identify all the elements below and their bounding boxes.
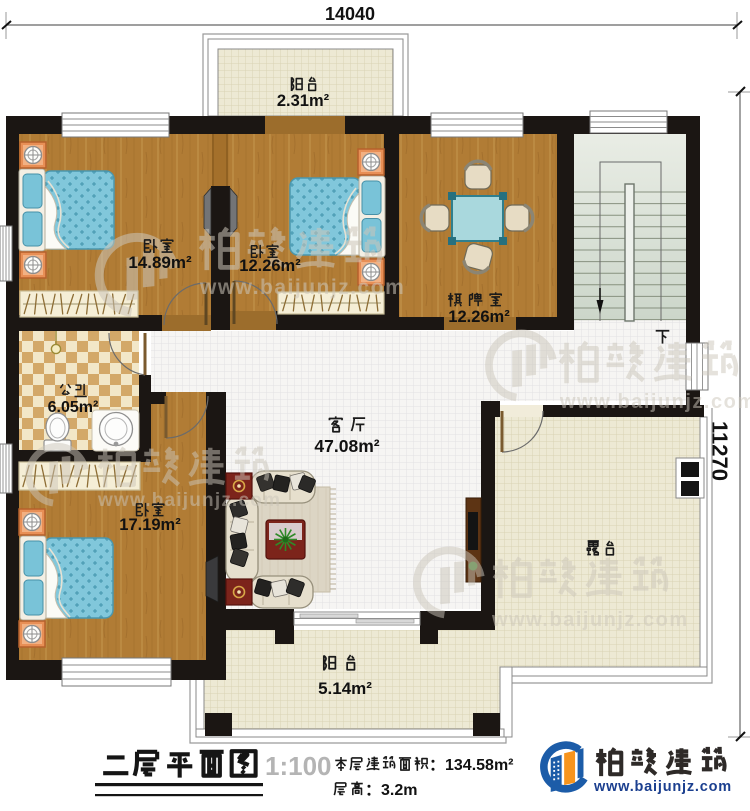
svg-text:：134.58m²: ：134.58m² [429, 757, 514, 774]
svg-text:17.19m²: 17.19m² [119, 516, 181, 534]
svg-text:6.05m²: 6.05m² [48, 399, 99, 416]
svg-text:www.baijunjz.com: www.baijunjz.com [593, 779, 732, 795]
svg-text:5.14m²: 5.14m² [318, 679, 372, 698]
svg-text:www.baijunjz.com: www.baijunjz.com [559, 391, 750, 413]
svg-text:www.baijunjz.com: www.baijunjz.com [199, 276, 405, 299]
svg-text:：3.2m: ：3.2m [365, 782, 417, 799]
svg-text:11270: 11270 [707, 421, 732, 481]
svg-text:2.31m²: 2.31m² [277, 92, 330, 110]
svg-text:12.26m²: 12.26m² [448, 308, 510, 326]
svg-text:www.baijunjz.com: www.baijunjz.com [491, 609, 689, 631]
svg-text:14.89m²: 14.89m² [128, 253, 192, 272]
svg-text:14040: 14040 [325, 4, 375, 24]
svg-text:1:100: 1:100 [265, 751, 332, 781]
svg-text:47.08m²: 47.08m² [314, 436, 379, 456]
svg-text:www.baijunjz.com: www.baijunjz.com [97, 490, 281, 511]
svg-text:12.26m²: 12.26m² [239, 257, 301, 275]
